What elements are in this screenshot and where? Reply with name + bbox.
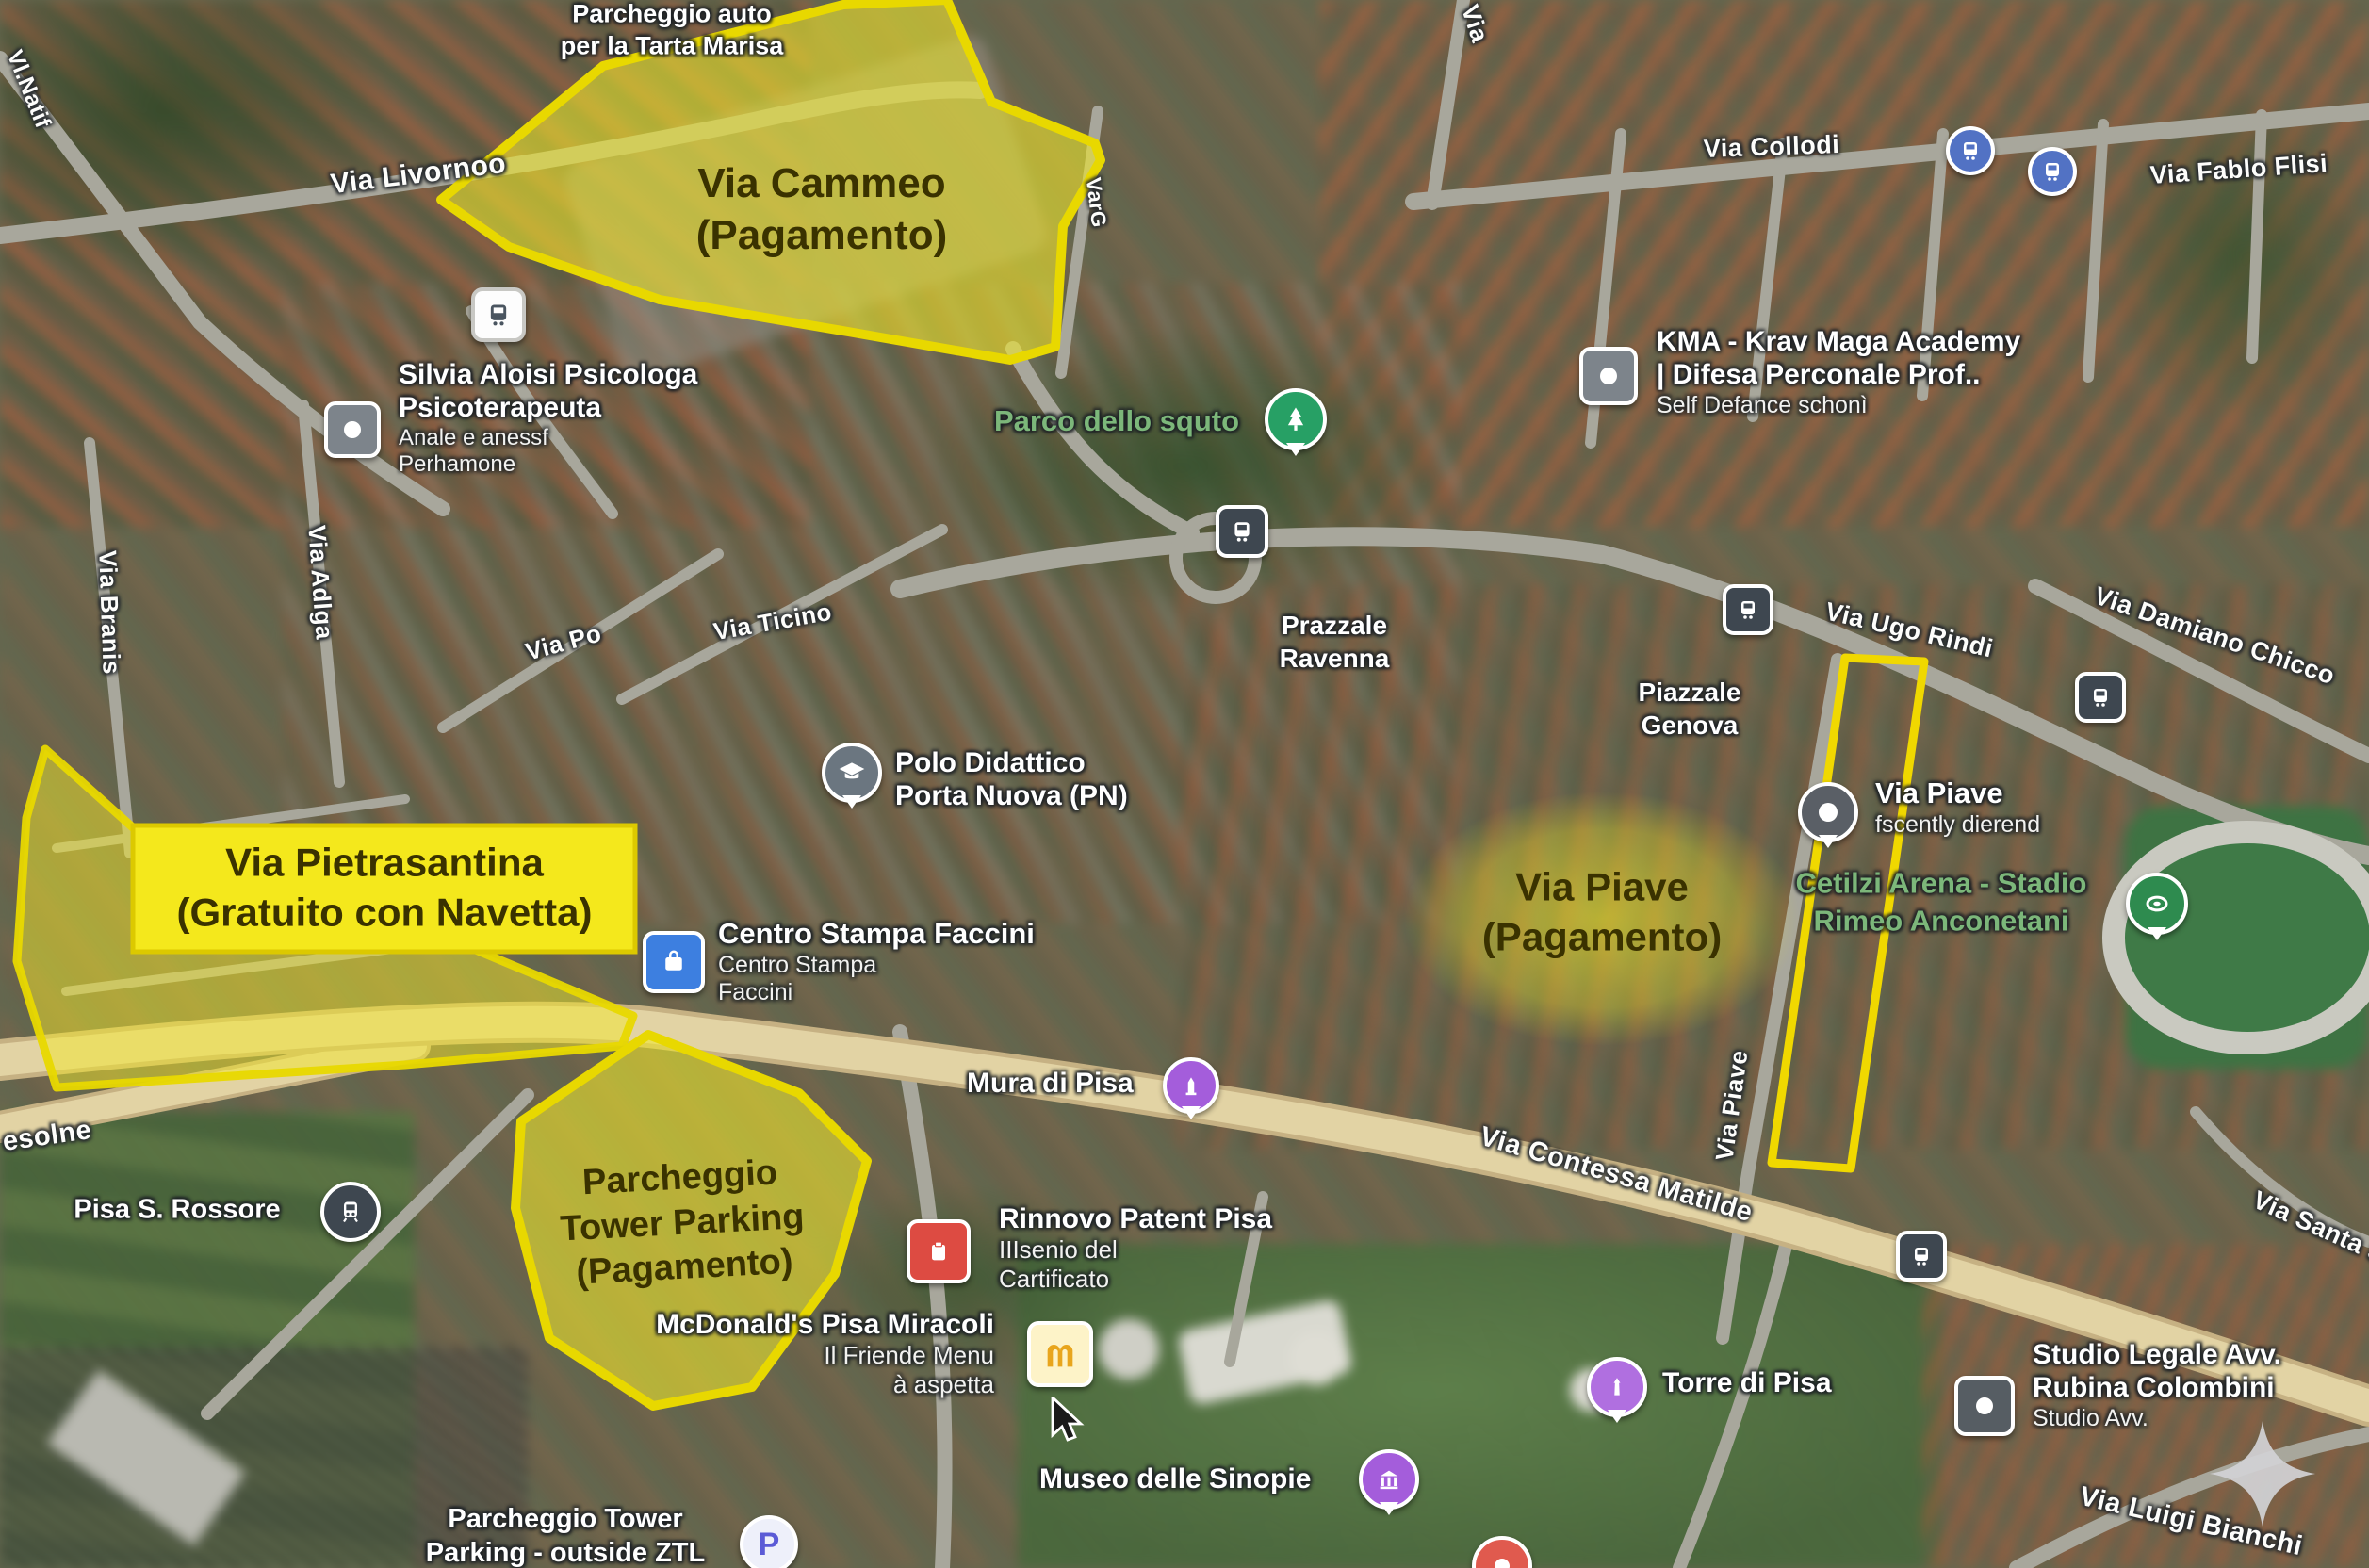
via-piave-dot-pin-icon[interactable] [1798,782,1858,842]
psychologist-poi-square-icon[interactable] [324,401,381,458]
bus-stop-icon[interactable] [2028,147,2077,196]
poi-via-piave[interactable]: Via Piave fscently dierend [1875,776,2040,839]
bus-stop-icon[interactable] [1723,584,1773,635]
bus-stop-icon[interactable] [1216,505,1268,558]
street-label-brana: Via Branis [92,550,126,676]
area-label-piazzale-genova: Piazzale Genova [1639,676,1741,742]
poi-polo-didattico[interactable]: Polo Didattico Porta Nuova (PN) [895,746,1128,813]
license-office-icon[interactable] [907,1219,971,1283]
studio-poi-square-icon[interactable] [1954,1376,2015,1436]
poi-arena-stadio[interactable]: Cetilzi Arena - Stadio Rimeo Anconetani [1796,865,2087,941]
area-label-ztl-parking[interactable]: Parcheggio Tower Parking - outside ZTL [426,1502,705,1568]
street-label-collodi: Via Collodi [1703,130,1840,164]
poi-mcdonalds[interactable]: McDonald's Pisa Miracoli Il Friende Menu… [622,1308,994,1399]
poi-parco[interactable]: Parco dello squto [994,404,1239,438]
bus-stop-icon[interactable] [1896,1231,1947,1282]
train-station-icon[interactable] [320,1182,381,1242]
annotation-via-pietrasantina: Via Pietrasantina (Gratuito con Navetta) [176,839,592,938]
torre-tower-pin-icon[interactable] [1587,1357,1647,1417]
parking-p-icon[interactable]: P [740,1515,798,1568]
poi-museo-sinopie[interactable]: Museo delle Sinopie [1039,1462,1311,1495]
mouse-cursor-icon [1051,1397,1096,1448]
area-label-prazzale-ravenna: Prazzale Ravenna [1280,609,1390,675]
poi-studio-legale[interactable]: Studio Legale Avv. Rubina Colombini Stud… [2033,1338,2281,1432]
park-tree-pin-icon[interactable] [1265,388,1327,450]
mura-tower-pin-icon[interactable] [1163,1057,1219,1114]
annotation-via-piave: Via Piave (Pagamento) [1482,863,1722,962]
annotation-tower-parking: Parcheggio Tower Parking (Pagamento) [557,1150,808,1297]
sparkle-icon [2210,1421,2315,1527]
annotation-via-cammeo: Via Cammeo (Pagamento) [696,157,947,261]
bus-stop-icon[interactable] [1946,126,1995,175]
bus-stop-icon[interactable] [471,287,526,342]
school-pin-icon[interactable] [822,743,882,803]
poi-torre-di-pisa[interactable]: Torre di Pisa [1662,1366,1832,1399]
poi-rinnovo-patenti[interactable]: Rinnovo Patent Pisa IIIsenio del Cartifi… [999,1202,1272,1294]
kma-poi-square-icon[interactable] [1579,347,1638,405]
poi-centro-stampa[interactable]: Centro Stampa Faccini Centro Stampa Facc… [718,917,1035,1007]
area-label-tarta-parking[interactable]: Parcheggio auto per la Tarta Marisa [561,0,784,62]
shopping-bag-icon[interactable] [643,931,705,993]
station-label-pisa-rossore[interactable]: Pisa S. Rossore [74,1195,280,1226]
museum-pin-icon[interactable] [1359,1449,1419,1510]
mcdonalds-m-icon[interactable] [1027,1321,1093,1387]
bus-stop-icon[interactable] [2075,672,2126,723]
poi-kma[interactable]: KMA - Krav Maga Academy | Difesa Percona… [1657,325,2020,419]
stadium-pin-icon[interactable] [2126,873,2188,935]
poi-silvia-aloisi[interactable]: Silvia Aloisi Psicologa Psicoterapeuta A… [399,358,697,478]
satellite-map[interactable]: Via Livornoo Vl.Natif Via Branis Via Adl… [0,0,2369,1568]
poi-mura-di-pisa[interactable]: Mura di Pisa [967,1067,1134,1100]
